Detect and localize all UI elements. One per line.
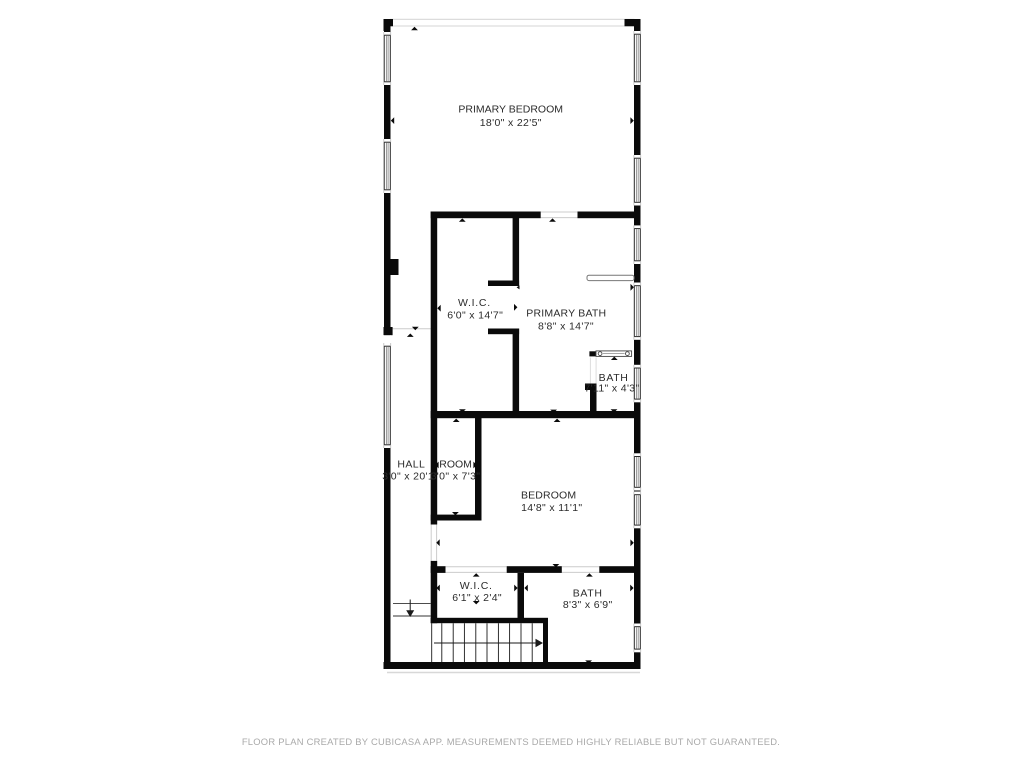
svg-text:FLOOR PLAN CREATED BY CUBICASA: FLOOR PLAN CREATED BY CUBICASA APP. MEAS… (242, 736, 780, 747)
svg-text:18'0" x 22'5": 18'0" x 22'5" (480, 117, 542, 129)
svg-text:7'11" x 4'3": 7'11" x 4'3" (584, 383, 639, 395)
svg-text:PRIMARY BEDROOM: PRIMARY BEDROOM (458, 103, 563, 115)
svg-text:6'0" x 14'7": 6'0" x 14'7" (447, 310, 503, 322)
svg-text:ROOM: ROOM (439, 459, 472, 471)
svg-text:PRIMARY BATH: PRIMARY BATH (526, 308, 606, 320)
svg-text:HALL: HALL (397, 459, 425, 471)
svg-text:BATH: BATH (573, 588, 603, 600)
svg-text:W.I.C.: W.I.C. (460, 580, 493, 592)
svg-text:14'8" x 11'1": 14'8" x 11'1" (521, 502, 582, 514)
svg-text:W.I.C.: W.I.C. (458, 297, 491, 309)
svg-text:8'3" x 6'9": 8'3" x 6'9" (563, 599, 613, 611)
svg-text:6'1" x 2'4": 6'1" x 2'4" (452, 592, 502, 604)
svg-text:3'0" x 7'3": 3'0" x 7'3" (431, 471, 481, 483)
svg-text:8'8" x 14'7": 8'8" x 14'7" (538, 321, 594, 333)
svg-text:BEDROOM: BEDROOM (521, 490, 576, 502)
